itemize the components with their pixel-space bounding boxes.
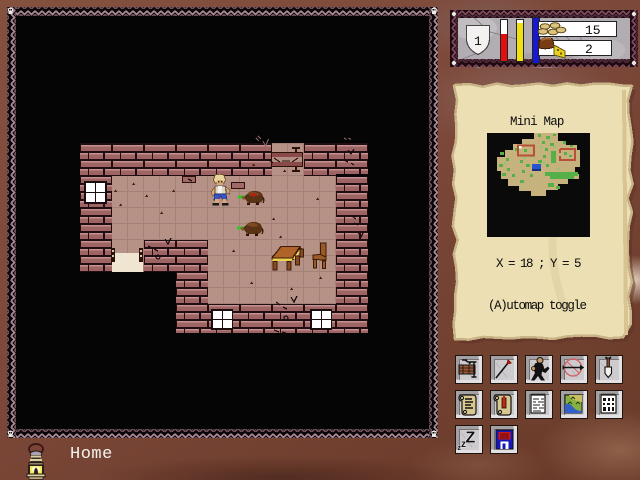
- svg-text:Z: Z: [466, 430, 476, 447]
- svg-text:z: z: [461, 439, 466, 450]
- svg-text:z: z: [458, 445, 462, 452]
